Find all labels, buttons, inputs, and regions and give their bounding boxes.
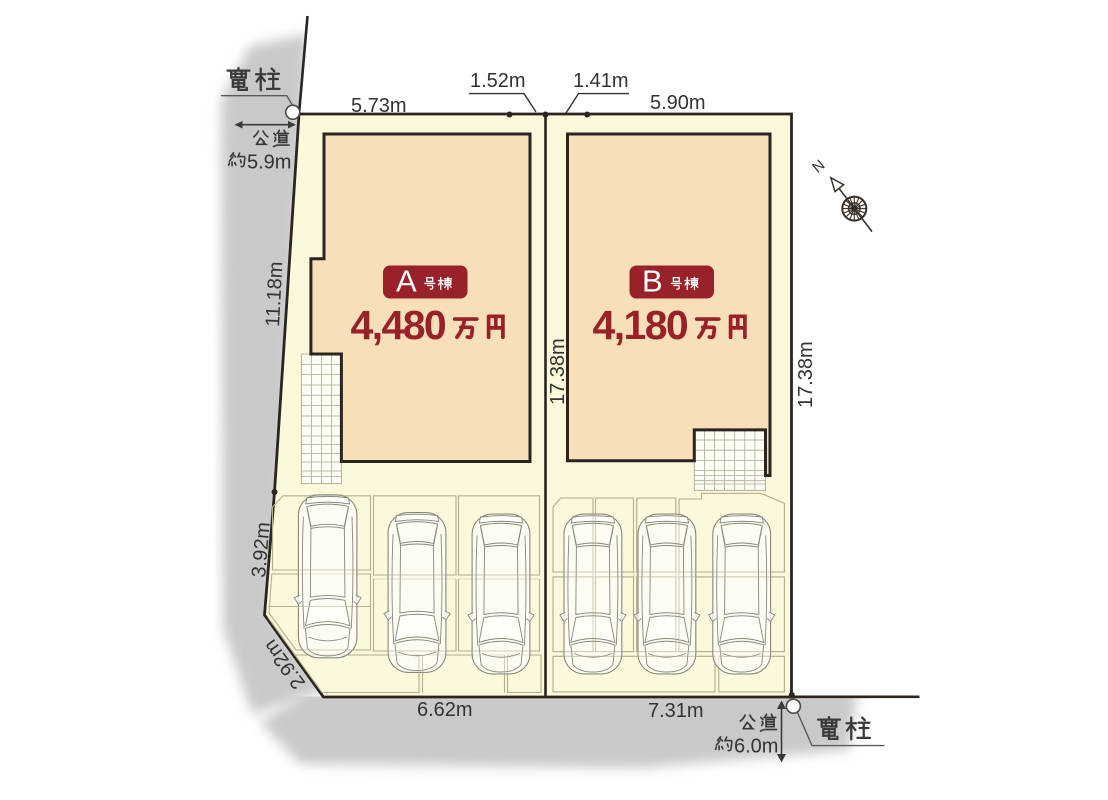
svg-text:1.41m: 1.41m [573, 70, 629, 92]
svg-text:1.52m: 1.52m [470, 70, 526, 92]
svg-text:11.18m: 11.18m [262, 261, 287, 327]
svg-text:4,480: 4,480 [351, 302, 446, 348]
svg-text:7.31m: 7.31m [648, 700, 704, 722]
svg-text:5.9m: 5.9m [247, 152, 291, 174]
svg-text:6.0m: 6.0m [734, 736, 778, 758]
svg-text:A: A [396, 264, 417, 299]
svg-text:5.90m: 5.90m [650, 92, 706, 114]
svg-text:17.38m: 17.38m [547, 338, 569, 405]
svg-text:N: N [809, 157, 828, 177]
svg-text:5.73m: 5.73m [351, 95, 407, 117]
svg-text:6.62m: 6.62m [417, 699, 473, 721]
svg-text:B: B [642, 264, 663, 299]
svg-text:17.38m: 17.38m [795, 341, 817, 408]
svg-text:4,180: 4,180 [593, 302, 688, 348]
